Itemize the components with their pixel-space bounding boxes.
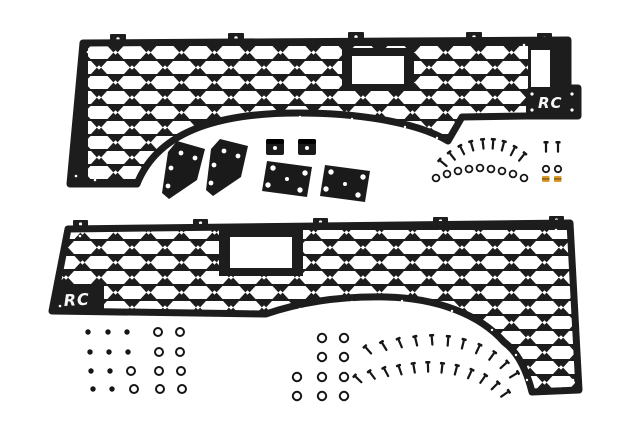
washer xyxy=(555,166,561,172)
washer xyxy=(130,385,138,393)
screw xyxy=(452,364,460,377)
screw xyxy=(480,138,486,150)
washer xyxy=(293,373,301,381)
plate-bracket-2 xyxy=(320,165,370,202)
screw xyxy=(487,350,498,363)
washer xyxy=(521,175,528,182)
screw xyxy=(429,334,435,346)
washer xyxy=(293,392,301,400)
bottom-panel: RC xyxy=(52,216,579,392)
hardware-washer-arc-top xyxy=(433,165,528,182)
hardware-washer-pair xyxy=(543,166,561,172)
screw xyxy=(459,338,467,351)
washer xyxy=(510,171,517,178)
screw xyxy=(508,370,521,381)
screw xyxy=(490,138,496,150)
screw xyxy=(446,150,457,162)
screw xyxy=(395,336,404,349)
hardware-screw-fan-inner-bottom xyxy=(352,361,512,399)
washer xyxy=(318,373,326,381)
screw xyxy=(465,367,475,380)
screw xyxy=(555,141,560,153)
clip-bracket-2 xyxy=(298,139,316,155)
top-panel-end-notch xyxy=(531,50,550,87)
screw xyxy=(352,373,364,385)
screw xyxy=(508,144,518,157)
washer xyxy=(488,166,495,173)
stake-pocket-cutout-top xyxy=(342,48,414,90)
product-photo-svg: RC xyxy=(0,0,640,427)
washer xyxy=(155,367,163,375)
washer xyxy=(176,348,184,356)
hardware-gold-clips xyxy=(542,176,562,182)
nut xyxy=(105,329,110,334)
washer xyxy=(155,348,163,356)
rc-logo-top: RC xyxy=(538,94,563,112)
screw xyxy=(457,143,467,156)
washer xyxy=(499,168,506,175)
angled-bracket-1 xyxy=(162,141,205,199)
rc-logo-plate-top: RC xyxy=(526,88,578,116)
washer xyxy=(477,165,484,172)
washer xyxy=(318,353,326,361)
washer xyxy=(455,168,462,175)
hardware-washer-cluster xyxy=(293,334,348,400)
nut xyxy=(125,349,130,354)
clip-bracket-1 xyxy=(266,139,284,155)
screw xyxy=(379,340,390,353)
washer xyxy=(318,392,326,400)
hardware-nut-grid xyxy=(85,329,130,391)
screw xyxy=(468,140,476,153)
washer xyxy=(340,392,348,400)
nut xyxy=(85,329,90,334)
washer xyxy=(340,373,348,381)
mounting-brackets xyxy=(162,139,370,202)
washer xyxy=(543,166,549,172)
washer xyxy=(176,328,184,336)
washer xyxy=(466,166,473,173)
washer xyxy=(156,385,164,393)
screw xyxy=(473,342,483,355)
nut xyxy=(109,386,114,391)
screw xyxy=(412,335,420,348)
washer xyxy=(127,367,135,375)
washer xyxy=(154,328,162,336)
washer xyxy=(340,353,348,361)
washer xyxy=(177,367,185,375)
washer xyxy=(318,334,326,342)
nut xyxy=(88,368,93,373)
hardware-washer-grid xyxy=(127,328,186,393)
washer xyxy=(444,171,451,178)
screw xyxy=(362,344,374,356)
angled-bracket-2 xyxy=(206,139,248,196)
screw xyxy=(437,157,449,169)
screw xyxy=(425,361,431,373)
gold-clip-nut xyxy=(554,176,562,182)
stake-pocket-cutout-bottom xyxy=(219,230,303,276)
screw xyxy=(366,369,377,381)
screw xyxy=(478,373,489,386)
washer xyxy=(433,175,440,182)
screw xyxy=(499,388,512,399)
washer xyxy=(340,334,348,342)
nut xyxy=(90,386,95,391)
nut xyxy=(87,349,92,354)
nut xyxy=(106,349,111,354)
screw xyxy=(439,362,445,374)
gold-clip-nut xyxy=(542,176,550,182)
nut xyxy=(124,329,129,334)
screw xyxy=(516,151,527,163)
washer xyxy=(178,385,186,393)
screw xyxy=(489,380,501,392)
plate-bracket-1 xyxy=(262,161,312,197)
screw xyxy=(381,365,391,378)
screw xyxy=(498,359,510,371)
rc-logo-corner-bottom: RC xyxy=(58,284,104,310)
screw xyxy=(396,363,405,376)
screw xyxy=(499,140,507,153)
screw xyxy=(445,335,451,347)
nut xyxy=(107,368,112,373)
screw xyxy=(410,362,417,374)
screw xyxy=(543,141,548,153)
rc-logo-bottom: RC xyxy=(63,290,90,310)
product-photo: RC xyxy=(0,0,640,427)
hardware-screw-pair xyxy=(543,141,560,153)
top-panel: RC xyxy=(70,32,578,188)
